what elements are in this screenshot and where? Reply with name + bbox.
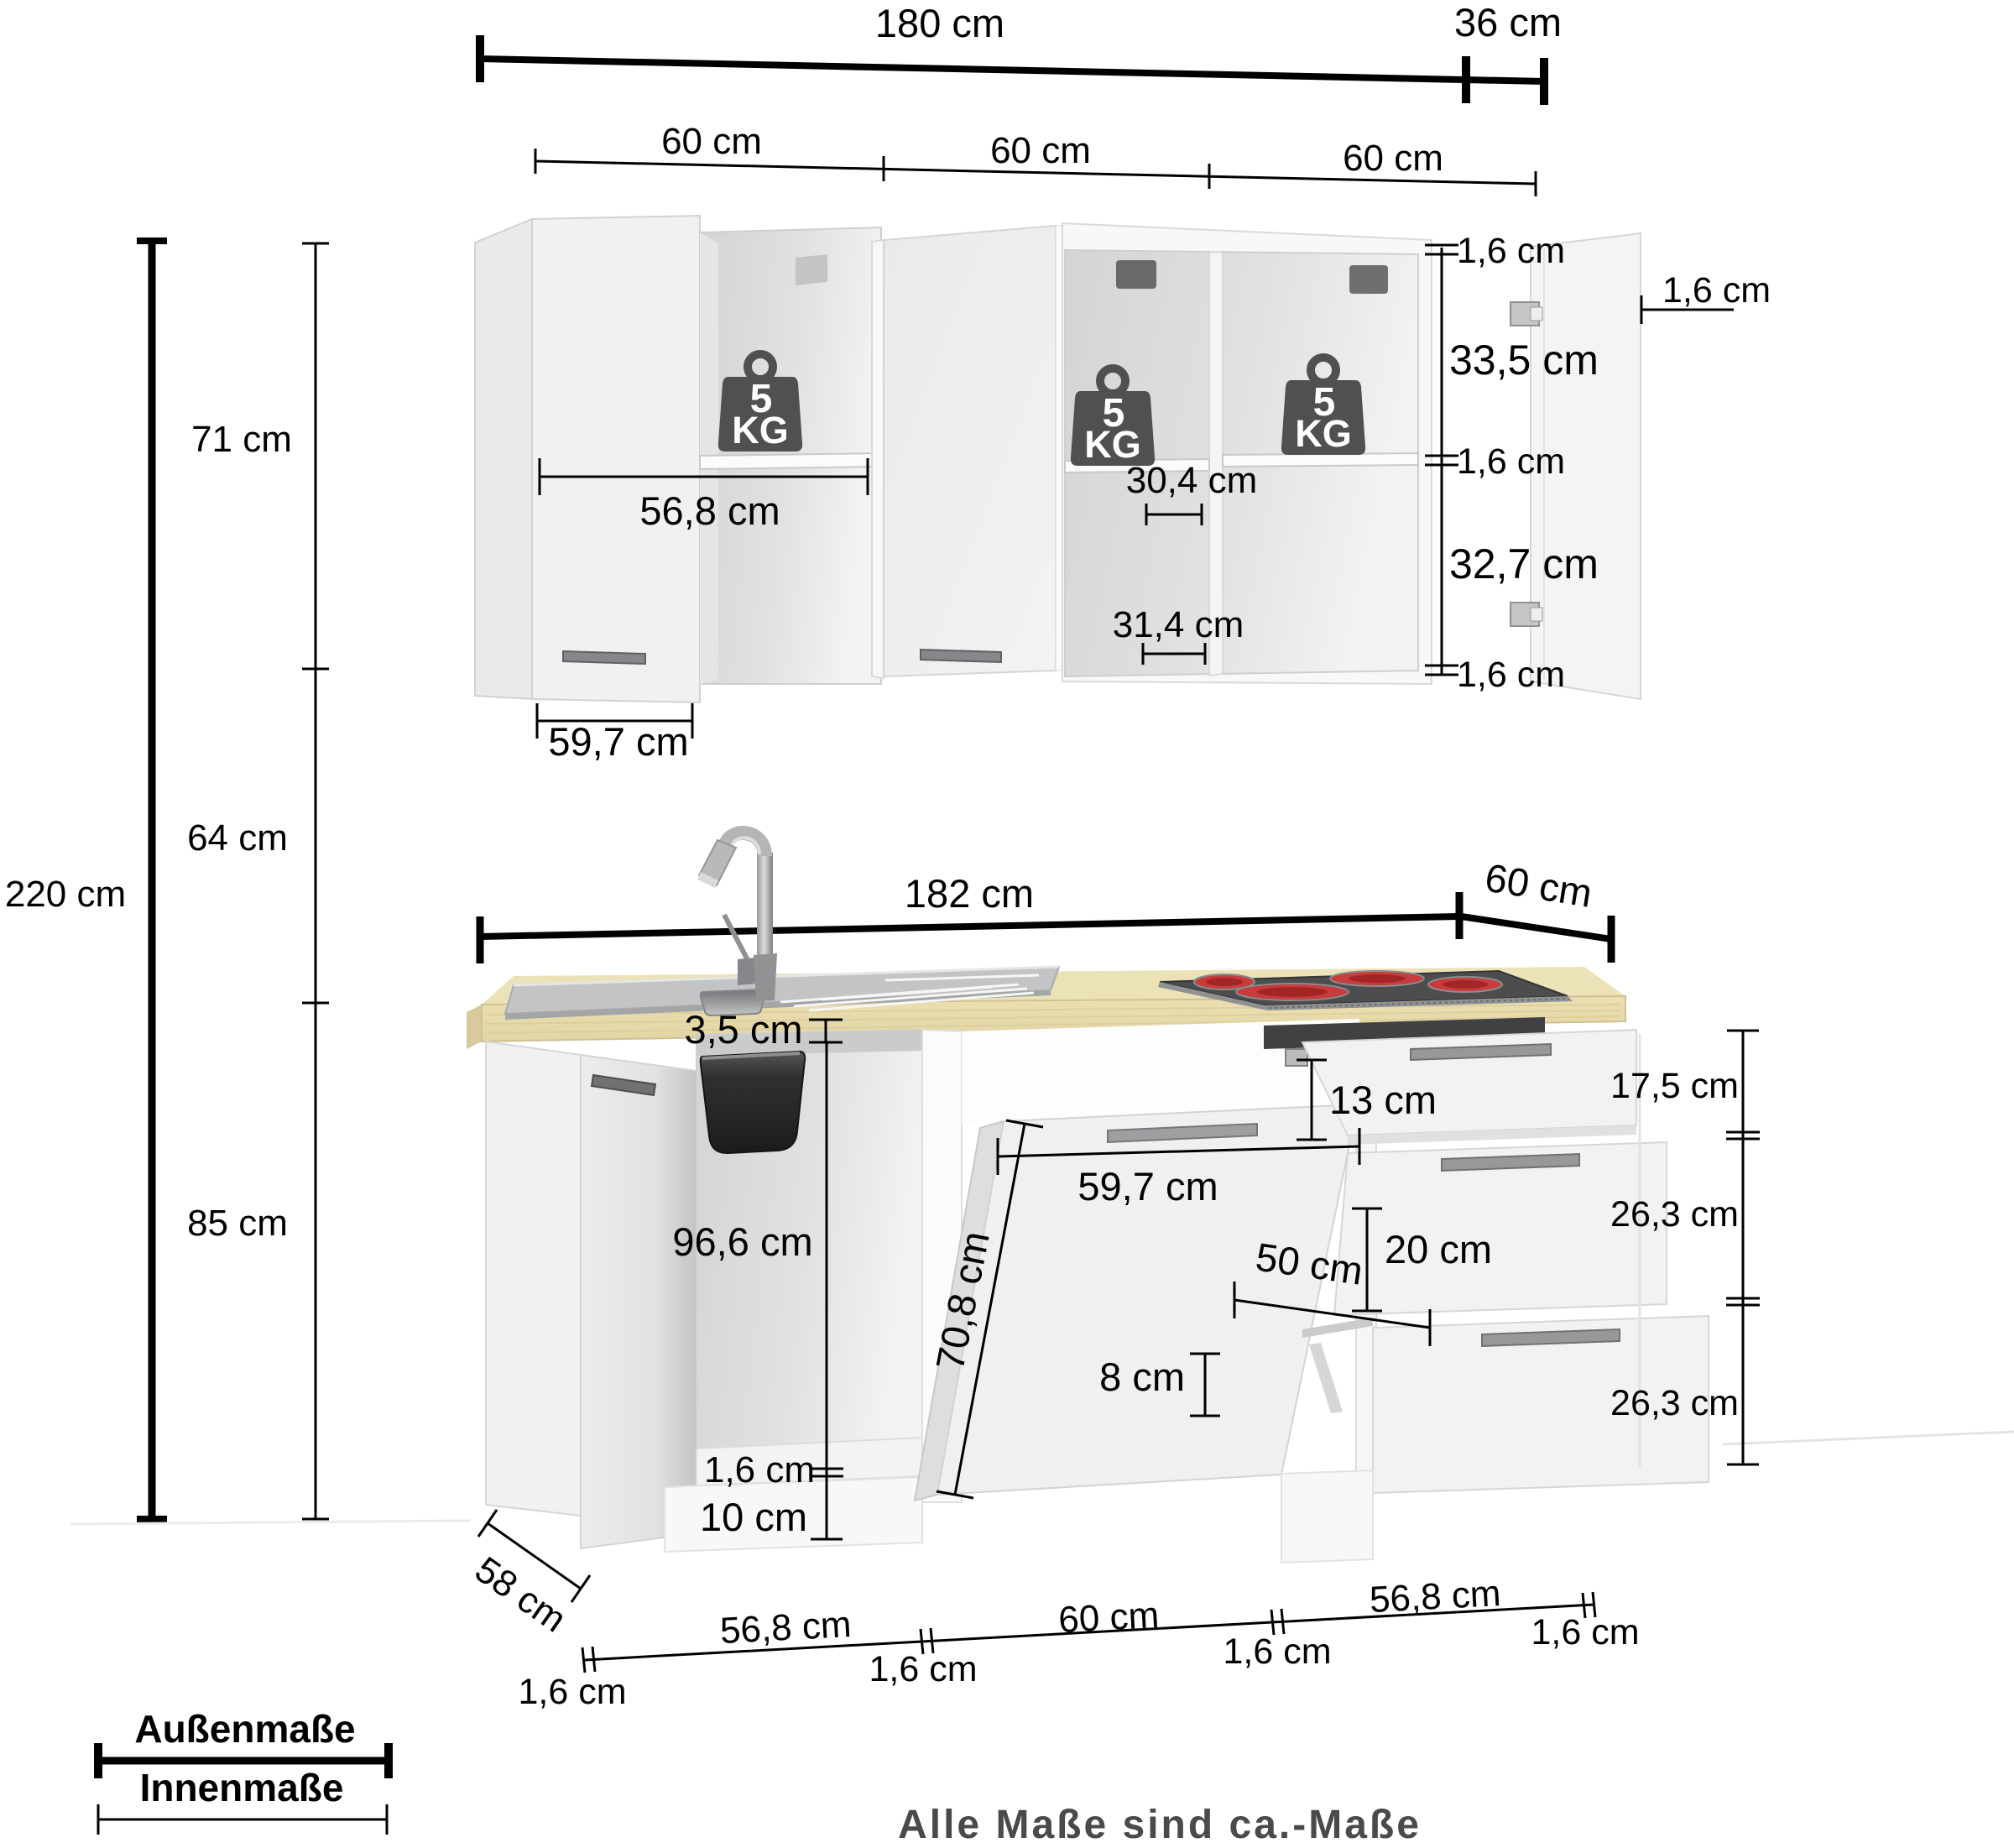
svg-text:1,6 cm: 1,6 cm: [704, 1449, 815, 1490]
svg-text:180 cm: 180 cm: [875, 1, 1004, 45]
svg-text:33,5 cm: 33,5 cm: [1449, 337, 1599, 384]
svg-text:1,6 cm: 1,6 cm: [1531, 1612, 1639, 1652]
svg-text:60 cm: 60 cm: [990, 130, 1091, 171]
svg-text:59,7 cm: 59,7 cm: [1077, 1164, 1218, 1209]
svg-text:8 cm: 8 cm: [1099, 1355, 1185, 1399]
svg-text:60 cm: 60 cm: [661, 121, 762, 162]
svg-text:60 cm: 60 cm: [1343, 138, 1443, 179]
svg-text:182 cm: 182 cm: [905, 871, 1034, 916]
svg-text:31,4 cm: 31,4 cm: [1113, 604, 1244, 645]
svg-text:1,6 cm: 1,6 cm: [1457, 441, 1565, 482]
svg-text:10 cm: 10 cm: [700, 1495, 807, 1539]
svg-text:1,6 cm: 1,6 cm: [1223, 1631, 1331, 1672]
svg-text:60 cm: 60 cm: [1057, 1595, 1160, 1641]
svg-text:1,6 cm: 1,6 cm: [1662, 270, 1771, 311]
svg-text:71 cm: 71 cm: [191, 419, 292, 460]
svg-text:85 cm: 85 cm: [187, 1203, 288, 1244]
svg-text:36 cm: 36 cm: [1454, 0, 1562, 44]
svg-text:220 cm: 220 cm: [5, 874, 126, 915]
svg-text:30,4 cm: 30,4 cm: [1126, 460, 1258, 501]
svg-text:64 cm: 64 cm: [187, 817, 288, 859]
svg-text:Innenmaße: Innenmaße: [140, 1766, 344, 1809]
svg-text:1,6 cm: 1,6 cm: [1457, 655, 1565, 695]
svg-text:96,6 cm: 96,6 cm: [672, 1219, 812, 1264]
svg-text:13 cm: 13 cm: [1329, 1078, 1437, 1122]
svg-text:56,8 cm: 56,8 cm: [639, 488, 780, 533]
svg-text:17,5 cm: 17,5 cm: [1610, 1066, 1739, 1106]
svg-text:26,3 cm: 26,3 cm: [1610, 1194, 1739, 1235]
svg-text:1,6 cm: 1,6 cm: [518, 1672, 626, 1712]
svg-text:1,6 cm: 1,6 cm: [1457, 231, 1565, 271]
svg-text:1,6 cm: 1,6 cm: [869, 1649, 977, 1689]
svg-text:3,5 cm: 3,5 cm: [684, 1007, 802, 1052]
svg-text:Alle Maße sind ca.-Maße: Alle Maße sind ca.-Maße: [898, 1803, 1422, 1847]
svg-text:Außenmaße: Außenmaße: [134, 1707, 355, 1751]
svg-text:56,8 cm: 56,8 cm: [1369, 1573, 1502, 1621]
svg-text:20 cm: 20 cm: [1385, 1227, 1492, 1271]
svg-text:59,7 cm: 59,7 cm: [548, 719, 688, 764]
svg-text:56,8 cm: 56,8 cm: [719, 1604, 853, 1652]
svg-text:32,7 cm: 32,7 cm: [1449, 540, 1599, 587]
svg-text:26,3 cm: 26,3 cm: [1610, 1383, 1739, 1423]
